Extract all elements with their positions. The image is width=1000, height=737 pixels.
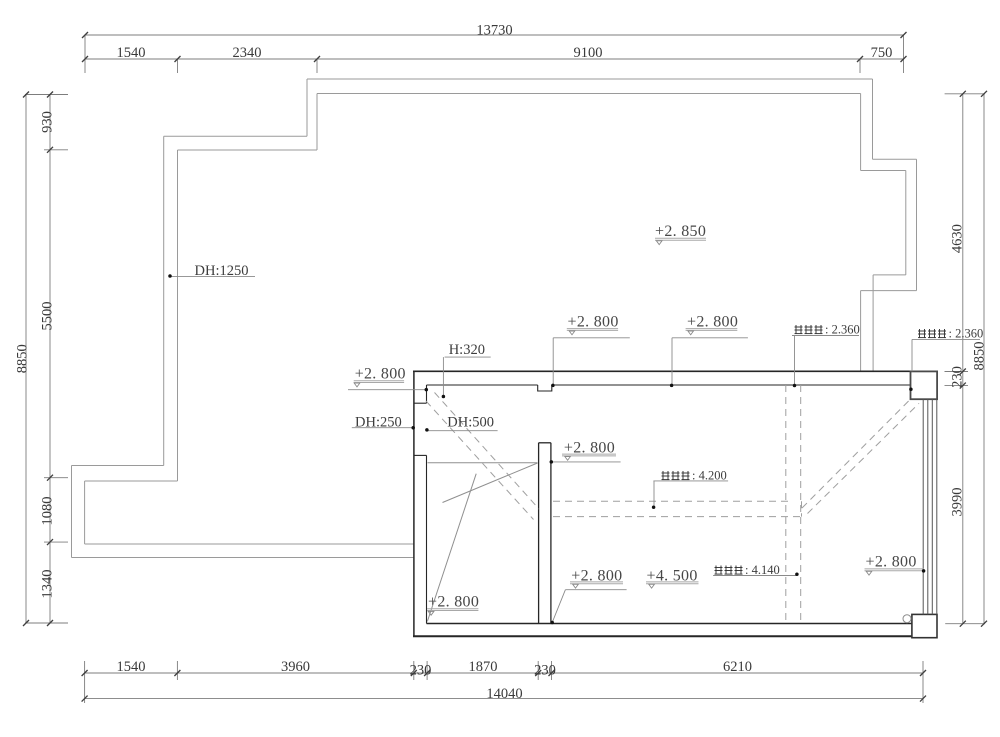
svg-text:8850: 8850 [972, 342, 988, 371]
svg-text:14040: 14040 [486, 686, 522, 702]
svg-text:3990: 3990 [950, 488, 966, 517]
svg-text:1540: 1540 [117, 45, 146, 61]
svg-text:4630: 4630 [950, 224, 966, 253]
svg-text:930: 930 [40, 111, 56, 133]
svg-text:1540: 1540 [117, 659, 146, 675]
svg-text:2340: 2340 [233, 45, 262, 61]
svg-text:6210: 6210 [723, 659, 752, 675]
svg-text:3960: 3960 [281, 659, 310, 675]
svg-text:: 4.140: : 4.140 [745, 563, 780, 577]
svg-text:: 4.200: : 4.200 [692, 469, 727, 483]
svg-text:H:320: H:320 [449, 342, 485, 358]
svg-text:230: 230 [950, 366, 966, 388]
svg-text:1080: 1080 [40, 497, 56, 526]
svg-text:750: 750 [871, 45, 893, 61]
svg-text:1340: 1340 [40, 570, 56, 599]
svg-text:5500: 5500 [40, 302, 56, 331]
svg-text:+2. 800: +2. 800 [568, 313, 619, 330]
svg-text:1870: 1870 [469, 659, 498, 675]
svg-text:+2. 850: +2. 850 [655, 223, 706, 240]
svg-text:13730: 13730 [476, 23, 512, 39]
svg-text:: 2.360: : 2.360 [825, 323, 860, 337]
svg-text:8850: 8850 [15, 344, 31, 373]
svg-text:230: 230 [534, 663, 556, 679]
svg-text:DH:500: DH:500 [447, 414, 494, 430]
svg-text:230: 230 [410, 663, 432, 679]
svg-text:+2. 800: +2. 800 [355, 366, 406, 383]
svg-text:+2. 800: +2. 800 [428, 594, 479, 611]
svg-text:9100: 9100 [574, 45, 603, 61]
svg-text:+2. 800: +2. 800 [687, 313, 738, 330]
svg-text:: 2.360: : 2.360 [949, 327, 984, 341]
svg-text:+2. 800: +2. 800 [866, 554, 917, 571]
